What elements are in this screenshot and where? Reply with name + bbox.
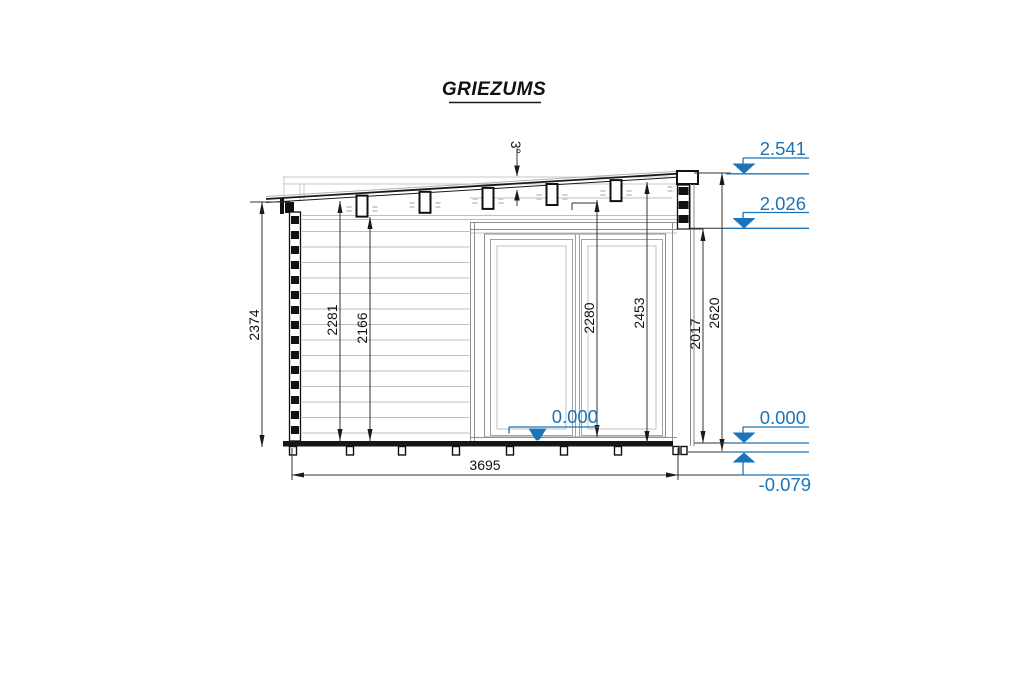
page-title: GRIEZUMS <box>442 79 546 100</box>
roof-slope-annotation: 3° <box>508 141 523 206</box>
elevation-label-floor-right: 0.000 <box>760 407 806 428</box>
dim-label-2017: 2017 <box>687 318 703 349</box>
section-drawing-page: GRIEZUMS <box>0 0 1034 678</box>
elevation-label-wall-top: 2.026 <box>760 193 806 214</box>
dim-label-3695: 3695 <box>469 457 500 473</box>
elevation-label-foundation: -0.079 <box>759 474 811 495</box>
dim-label-2374: 2374 <box>246 309 262 340</box>
floor <box>283 441 673 455</box>
elevation-label-floor-interior: 0.000 <box>552 406 598 427</box>
section-drawing: GRIEZUMS <box>0 0 1034 678</box>
dim-label-2281: 2281 <box>324 304 340 335</box>
dim-label-2620: 2620 <box>706 297 722 328</box>
dim-label-2280: 2280 <box>581 302 597 333</box>
left-wall <box>280 198 301 441</box>
dim-label-2166: 2166 <box>354 312 370 343</box>
elevation-label-roof-top: 2.541 <box>760 138 806 159</box>
drawing-title: GRIEZUMS <box>442 79 546 103</box>
roof-angle-label: 3° <box>508 141 523 154</box>
dim-label-2453: 2453 <box>631 297 647 328</box>
